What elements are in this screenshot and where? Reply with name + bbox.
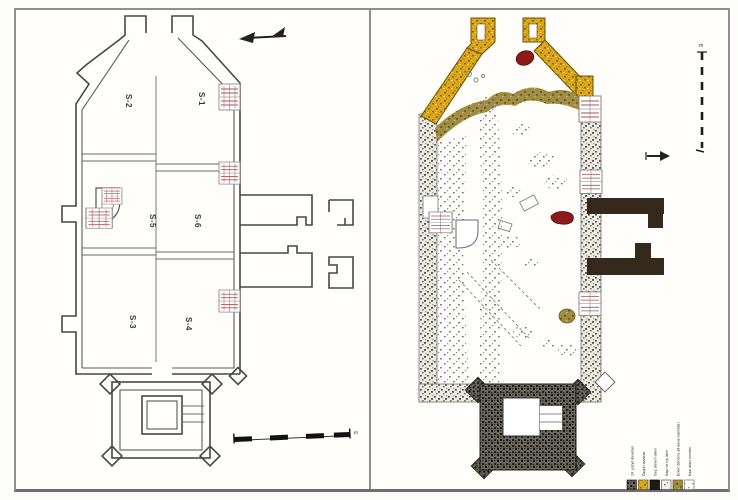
trench-label-s2: S-2 xyxy=(124,94,133,108)
trench-label-s3: S-3 xyxy=(128,315,137,329)
legend-label: Kapı ve niş izleri xyxy=(665,450,669,476)
church-outline xyxy=(62,16,240,374)
side-annex-arms xyxy=(240,195,353,288)
left-plan-panel: S-2 S-1 S-5 S-6 S-3 S-4 xyxy=(16,10,369,489)
olive-feature xyxy=(559,309,575,323)
legend-label: Özgün duvarlar xyxy=(642,451,646,476)
apsidiole xyxy=(456,220,478,248)
legend-label: 19. yüzyıl duvarları xyxy=(631,446,635,476)
scanned-figure-page: S-2 S-1 S-5 S-6 S-3 S-4 xyxy=(0,0,738,500)
trench-label-s4: S-4 xyxy=(184,317,193,331)
legend-entry: Özgün duvarlar xyxy=(639,451,649,490)
legend-entry: 19. yüzyıl duvarları xyxy=(627,446,637,490)
left-plan-svg: S-2 S-1 S-5 S-6 S-3 S-4 xyxy=(16,10,369,490)
west-tower xyxy=(100,367,246,466)
right-plan-panel: m 19. yüzyıl duvarları Özgün duvarlar Ge… xyxy=(371,10,727,489)
legend-swatch-light-texture xyxy=(663,482,670,489)
west-tower xyxy=(465,377,590,478)
scale-unit-label: m xyxy=(699,43,703,49)
scale-bar: m xyxy=(696,43,707,152)
legend-swatch-olive xyxy=(673,480,683,490)
legend-swatch-white-stipple xyxy=(685,480,695,490)
figure-frame: S-2 S-1 S-5 S-6 S-3 S-4 xyxy=(14,8,730,492)
legend-label: Geç dönem ekleri xyxy=(654,448,658,476)
corner-buttress xyxy=(230,368,247,385)
north-arrow-icon xyxy=(646,151,670,161)
legend-swatch-black xyxy=(650,480,660,490)
north-arrow-icon xyxy=(239,27,286,43)
legend-entry: Erken döneme ait duvar kalıntıları xyxy=(673,422,683,489)
olive-chord-band xyxy=(435,87,583,142)
legend-entry: Kazı alanı sınırları xyxy=(685,447,695,489)
right-plan-svg: m 19. yüzyıl duvarları Özgün duvarlar Ge… xyxy=(371,10,727,490)
scale-bar: m xyxy=(234,428,358,443)
trench-label-s1: S-1 xyxy=(197,92,206,106)
trench-labels: S-2 S-1 S-5 S-6 S-3 S-4 xyxy=(124,92,206,331)
legend-label: Erken döneme ait duvar kalıntıları xyxy=(677,422,681,476)
opening-markers xyxy=(86,84,240,312)
scale-unit-label: m xyxy=(354,430,358,436)
legend-swatch-yellow xyxy=(639,480,649,490)
tower-door-gap xyxy=(152,367,172,375)
trench-label-s5: S-5 xyxy=(148,214,157,228)
legend-entry: Kapı ve niş izleri xyxy=(662,450,672,490)
legend-entry: Geç dönem ekleri xyxy=(650,448,660,490)
trench-label-s6: S-6 xyxy=(193,214,202,228)
legend: 19. yüzyıl duvarları Özgün duvarlar Geç … xyxy=(627,422,694,489)
legend-swatch-dark xyxy=(627,480,637,490)
yellow-original-walls xyxy=(421,18,593,124)
legend-label: Kazı alanı sınırları xyxy=(688,447,692,476)
